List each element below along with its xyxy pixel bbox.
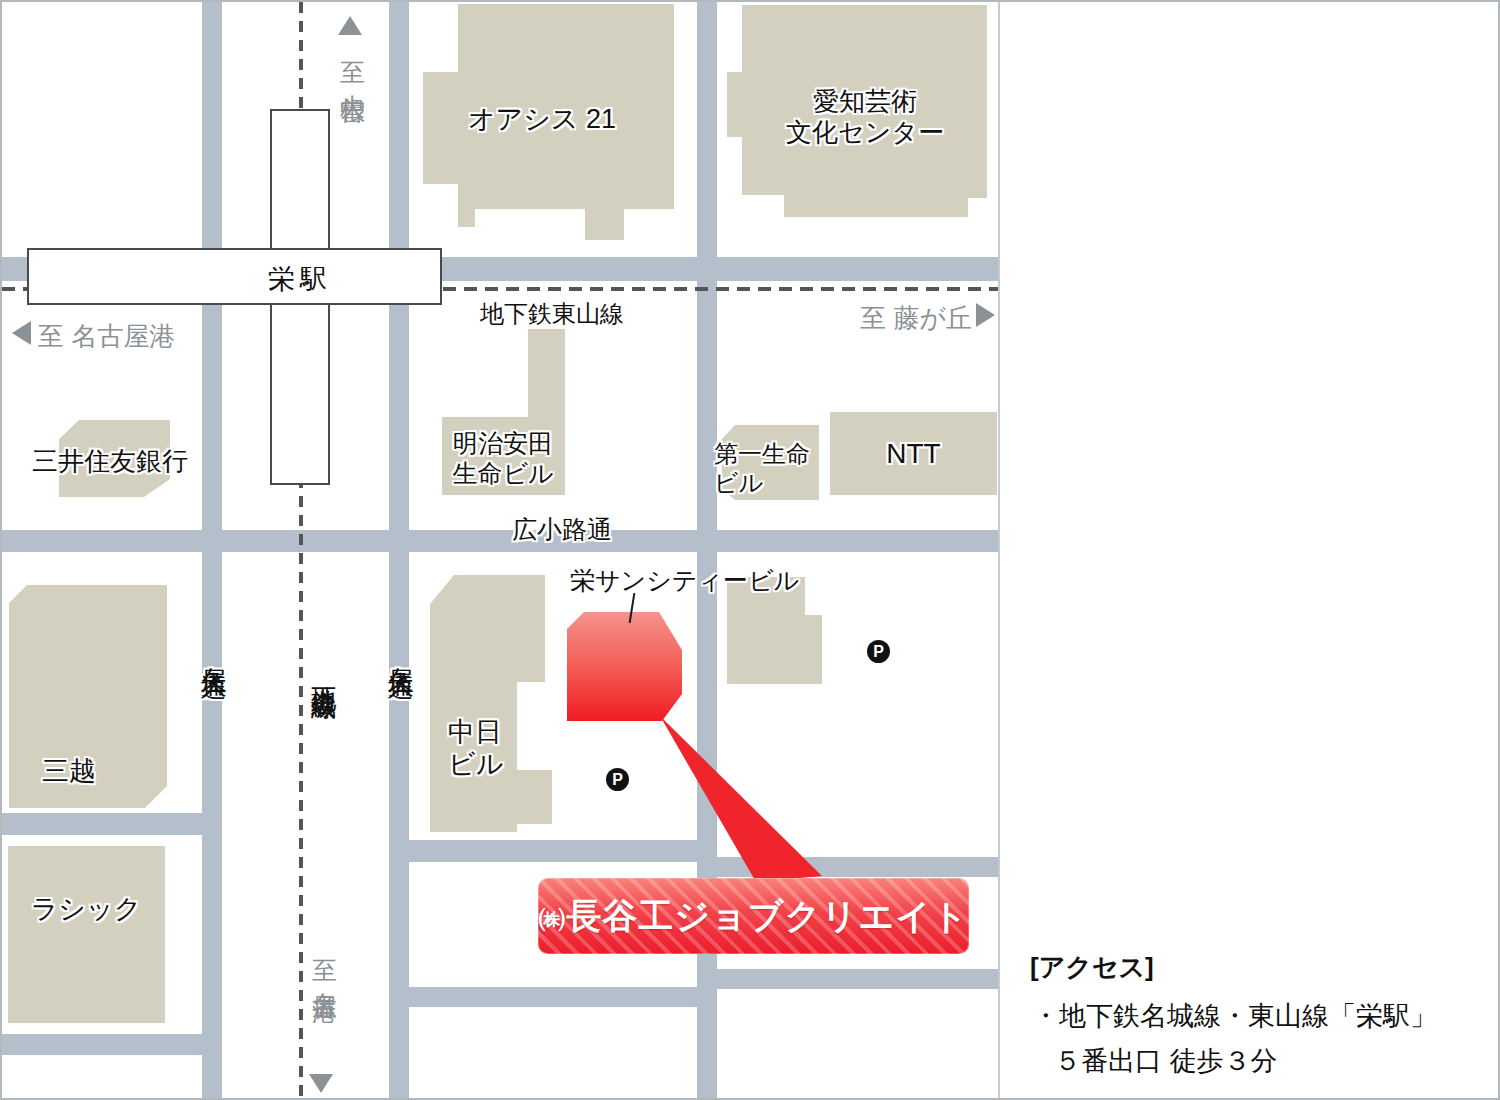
map-area: 栄駅 P P ㈱長谷工ジョブクリエイト 至 大曽根 至 名古屋港 至 藤が丘 至… [2, 2, 1000, 1098]
destination-banner: ㈱長谷工ジョブクリエイト [538, 878, 969, 954]
sun-city-label: 栄サンシティービル [570, 564, 799, 597]
chunichi-label-line1: 中日 [448, 716, 503, 748]
direction-east-label: 至 藤が丘 [857, 301, 972, 336]
ntt-label: NTT [830, 438, 997, 470]
building-chunichi [430, 575, 552, 832]
hisaya-odori-east-label: 久屋大通 [384, 647, 419, 655]
aichi-arts-label: 愛知芸術 文化センター [765, 86, 965, 148]
road-mid-east [697, 857, 998, 877]
destination-name: 長谷工ジョブクリエイト [566, 896, 969, 935]
access-line2: ５番出口 徒歩３分 [1054, 1043, 1278, 1079]
direction-north-label: 至 大曽根 [337, 42, 370, 80]
arrow-right-icon [976, 303, 995, 327]
chunichi-label-line2: ビル [448, 748, 503, 780]
meiji-yasuda-label-line1: 明治安田 [443, 428, 563, 458]
mitsukoshi-label: 三越 [42, 753, 96, 789]
oasis21-label: オアシス 21 [447, 101, 637, 137]
direction-west-label: 至 名古屋港 [38, 319, 175, 354]
station-label: 栄駅 [250, 261, 350, 297]
road-bottom-center [389, 987, 717, 1007]
destination-banner-label: ㈱長谷工ジョブクリエイト [538, 893, 969, 940]
arrow-left-icon [12, 321, 31, 345]
daiichi-life-label: 第一生命 ビル [714, 439, 810, 497]
road-bottom-west [2, 1034, 222, 1055]
road-mid-west [2, 813, 222, 835]
access-heading: [アクセス] [1030, 950, 1154, 985]
road-mid-center [389, 840, 717, 862]
aichi-arts-label-line1: 愛知芸術 [765, 86, 965, 117]
meijo-line-label: 地下鉄名城線 [308, 666, 341, 678]
road-hirokoji [2, 530, 998, 552]
hisaya-odori-west-label: 久屋大通 [197, 647, 232, 655]
meiji-yasuda-label-line2: 生命ビル [443, 458, 563, 488]
building-lachic [8, 846, 165, 1023]
arrow-down-icon [309, 1074, 333, 1093]
map-canvas: 栄駅 P P ㈱長谷工ジョブクリエイト 至 大曽根 至 名古屋港 至 藤が丘 至… [0, 0, 1500, 1100]
aichi-arts-label-line2: 文化センター [765, 117, 965, 148]
access-line1: ・地下鉄名城線・東山線「栄駅」 [1032, 998, 1437, 1034]
lachic-label: ラシック [22, 891, 150, 927]
arrow-up-icon [338, 16, 362, 35]
station-bar-horizontal [27, 248, 442, 305]
chunichi-label: 中日 ビル [448, 716, 503, 780]
direction-south-label: 至 名古屋港 [309, 940, 342, 980]
parking-icon-center: P [606, 768, 629, 791]
destination-prefix: ㈱ [538, 904, 566, 934]
hirokoji-dori-label: 広小路通 [512, 513, 612, 546]
higashiyama-line-label: 地下鉄東山線 [480, 298, 624, 330]
smbc-label: 三井住友銀行 [32, 444, 188, 479]
building-sun-city-highlight [567, 612, 682, 724]
daiichi-life-label-line1: 第一生命 [714, 439, 810, 468]
road-bottom-east [717, 969, 998, 989]
meiji-yasuda-label: 明治安田 生命ビル [443, 428, 563, 488]
parking-icon-east: P [867, 640, 890, 663]
daiichi-life-label-line2: ビル [714, 468, 810, 497]
